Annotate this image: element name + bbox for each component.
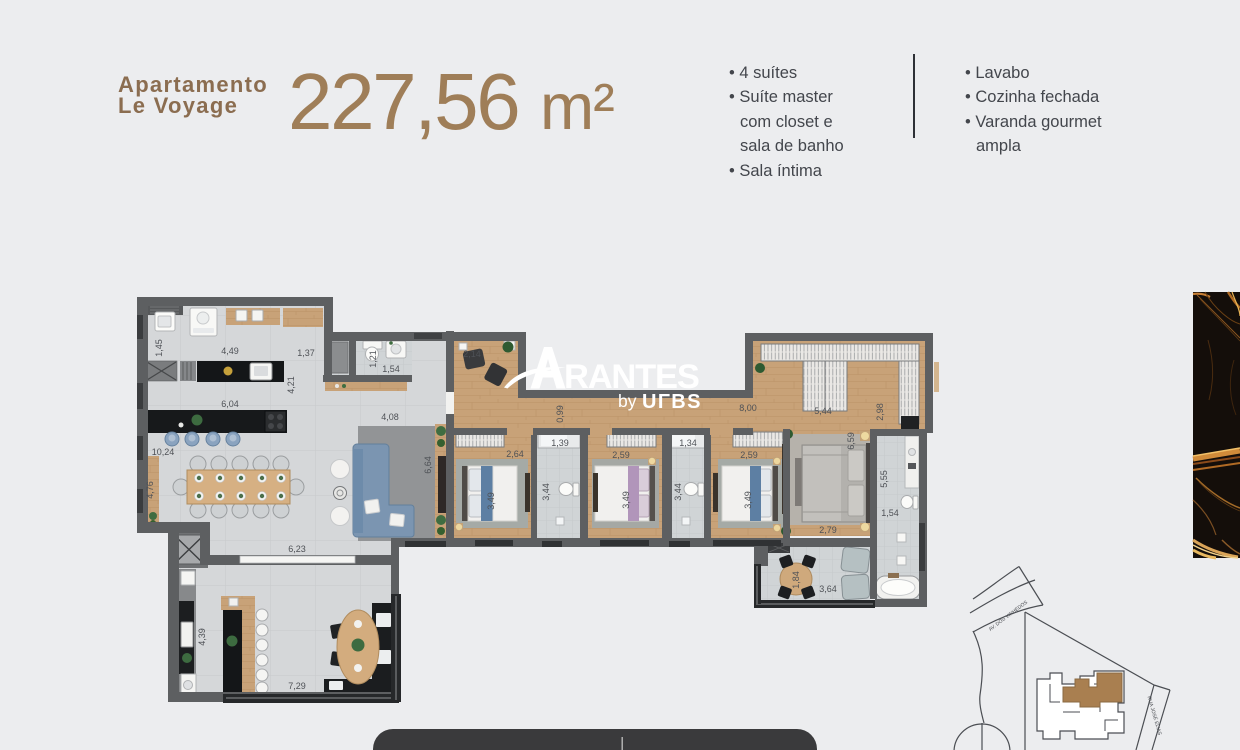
svg-text:2,64: 2,64 — [506, 449, 524, 459]
svg-text:2,59: 2,59 — [612, 450, 630, 460]
svg-text:1,45: 1,45 — [154, 339, 164, 357]
svg-text:4,76: 4,76 — [145, 481, 155, 499]
svg-text:1,54: 1,54 — [382, 364, 400, 374]
svg-text:RUA JOSÉ ELIAS: RUA JOSÉ ELIAS — [1146, 695, 1164, 736]
svg-text:6,23: 6,23 — [288, 544, 306, 554]
svg-text:UΓBS: UΓBS — [642, 391, 702, 413]
svg-text:3,64: 3,64 — [819, 584, 837, 594]
svg-text:by: by — [618, 391, 637, 411]
svg-text:2,59: 2,59 — [740, 450, 758, 460]
svg-text:4,08: 4,08 — [381, 412, 399, 422]
svg-text:5,44: 5,44 — [814, 406, 832, 416]
svg-text:6,04: 6,04 — [221, 399, 239, 409]
svg-text:4,39: 4,39 — [197, 628, 207, 646]
svg-text:AV. DOS VINHEDOS: AV. DOS VINHEDOS — [988, 599, 1030, 632]
svg-text:10,24: 10,24 — [152, 447, 175, 457]
svg-text:3,49: 3,49 — [621, 491, 631, 509]
svg-text:3,44: 3,44 — [673, 483, 683, 501]
svg-text:7,29: 7,29 — [288, 681, 306, 691]
svg-text:2,98: 2,98 — [875, 403, 885, 421]
svg-text:3,49: 3,49 — [486, 492, 496, 510]
svg-text:1,39: 1,39 — [551, 438, 569, 448]
svg-text:6,64: 6,64 — [423, 456, 433, 474]
svg-text:3,49: 3,49 — [743, 491, 753, 509]
svg-text:3,44: 3,44 — [541, 483, 551, 501]
svg-text:2,14: 2,14 — [463, 349, 481, 359]
svg-text:5,55: 5,55 — [879, 470, 889, 488]
svg-text:2,79: 2,79 — [819, 525, 837, 535]
svg-text:6,59: 6,59 — [846, 432, 856, 450]
svg-text:4,21: 4,21 — [286, 376, 296, 394]
svg-text:1,54: 1,54 — [881, 508, 899, 518]
svg-text:1,21: 1,21 — [368, 350, 378, 368]
svg-text:1,34: 1,34 — [679, 438, 697, 448]
svg-text:4,49: 4,49 — [221, 346, 239, 356]
svg-text:8,00: 8,00 — [739, 403, 757, 413]
svg-text:0,99: 0,99 — [555, 405, 565, 423]
svg-text:1,84: 1,84 — [791, 571, 801, 589]
svg-text:1,37: 1,37 — [297, 348, 315, 358]
